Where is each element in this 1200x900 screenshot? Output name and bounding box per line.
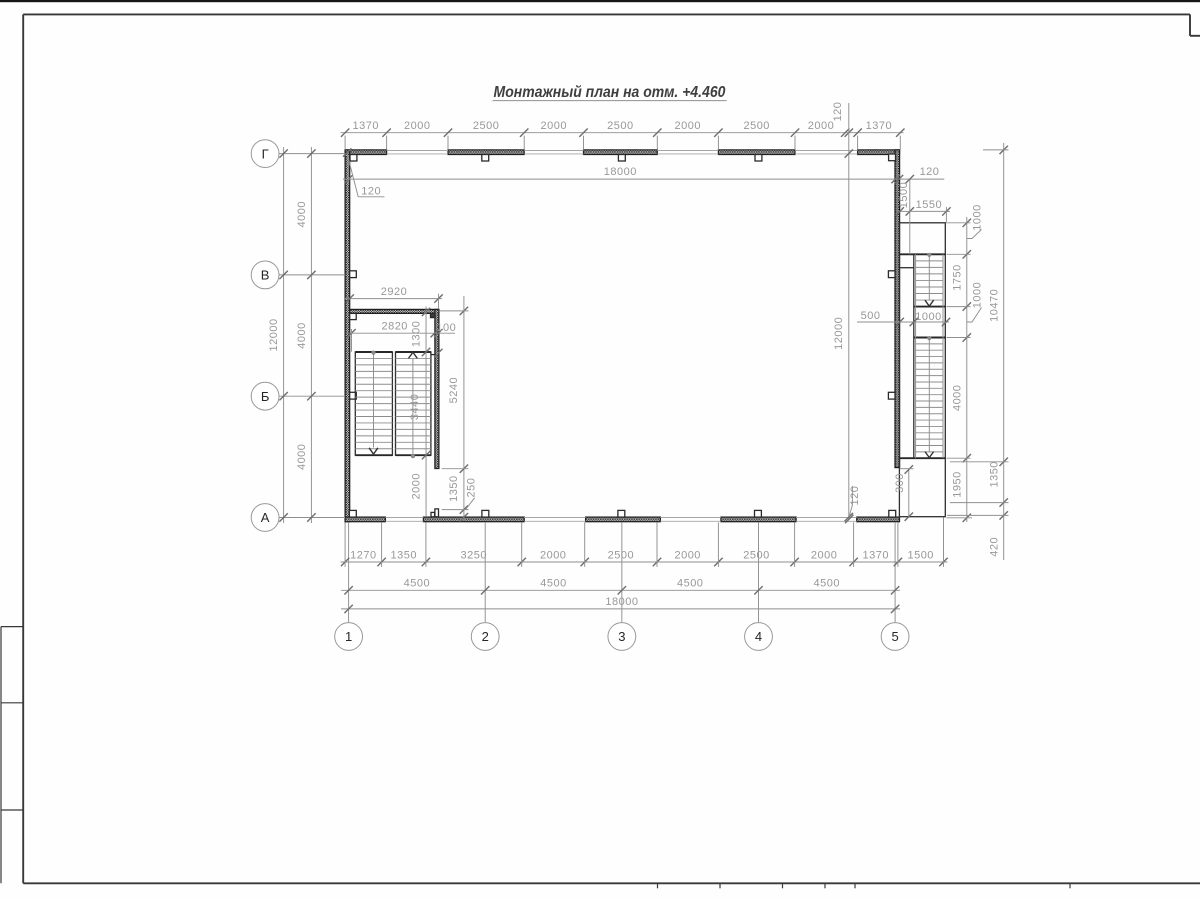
- svg-text:2500: 2500: [743, 549, 769, 561]
- svg-text:120: 120: [361, 186, 381, 198]
- svg-text:12000: 12000: [833, 317, 845, 350]
- svg-text:1300: 1300: [410, 321, 422, 347]
- svg-text:3: 3: [618, 629, 625, 644]
- svg-text:100: 100: [436, 322, 456, 334]
- svg-text:1950: 1950: [951, 471, 963, 497]
- svg-text:4500: 4500: [404, 577, 430, 589]
- svg-text:1000: 1000: [971, 204, 983, 230]
- svg-text:120: 120: [849, 486, 861, 506]
- svg-text:2000: 2000: [808, 120, 834, 132]
- svg-text:1000: 1000: [915, 311, 941, 323]
- svg-text:4000: 4000: [951, 385, 963, 411]
- svg-text:2: 2: [482, 629, 489, 644]
- svg-text:4000: 4000: [296, 201, 308, 227]
- svg-text:10470: 10470: [988, 289, 1000, 322]
- svg-text:120: 120: [920, 166, 940, 178]
- svg-text:2500: 2500: [473, 120, 499, 132]
- svg-text:2000: 2000: [410, 473, 422, 499]
- svg-text:1500: 1500: [907, 549, 933, 561]
- svg-text:1000: 1000: [971, 282, 983, 308]
- svg-text:2000: 2000: [675, 120, 701, 132]
- svg-text:1370: 1370: [863, 549, 889, 561]
- svg-text:1370: 1370: [353, 120, 379, 132]
- svg-text:500: 500: [861, 310, 881, 322]
- svg-text:1350: 1350: [988, 461, 1000, 487]
- svg-text:4500: 4500: [814, 577, 840, 589]
- svg-text:5: 5: [891, 629, 898, 644]
- svg-text:1: 1: [345, 629, 352, 644]
- svg-text:2000: 2000: [540, 549, 566, 561]
- svg-text:Монтажный план на отм. +4.460: Монтажный план на отм. +4.460: [494, 84, 727, 101]
- svg-text:2000: 2000: [811, 549, 837, 561]
- svg-text:2500: 2500: [608, 549, 634, 561]
- svg-text:300: 300: [894, 473, 906, 493]
- svg-text:420: 420: [988, 537, 1000, 557]
- svg-text:3440: 3440: [409, 394, 421, 420]
- svg-text:А: А: [261, 510, 270, 525]
- svg-text:2000: 2000: [674, 549, 700, 561]
- svg-text:Б: Б: [261, 389, 270, 404]
- svg-text:2000: 2000: [541, 120, 567, 132]
- svg-text:4: 4: [755, 629, 762, 644]
- svg-text:4500: 4500: [540, 577, 566, 589]
- svg-text:2500: 2500: [743, 120, 769, 132]
- svg-text:4000: 4000: [296, 444, 308, 470]
- svg-text:2000: 2000: [404, 120, 430, 132]
- svg-text:В: В: [261, 268, 270, 283]
- svg-text:3250: 3250: [461, 549, 487, 561]
- svg-text:4500: 4500: [677, 577, 703, 589]
- svg-text:2500: 2500: [607, 120, 633, 132]
- svg-text:1350: 1350: [448, 475, 460, 501]
- svg-text:2820: 2820: [381, 321, 407, 333]
- svg-text:1270: 1270: [350, 549, 376, 561]
- svg-text:18000: 18000: [605, 596, 638, 608]
- svg-text:5240: 5240: [448, 377, 460, 403]
- svg-text:4000: 4000: [296, 322, 308, 348]
- svg-text:1550: 1550: [916, 199, 942, 211]
- svg-text:120: 120: [832, 102, 844, 122]
- svg-text:1500: 1500: [898, 182, 910, 208]
- svg-text:1370: 1370: [866, 120, 892, 132]
- svg-text:1350: 1350: [391, 549, 417, 561]
- svg-text:250: 250: [466, 478, 478, 498]
- svg-text:Г: Г: [262, 146, 269, 161]
- svg-text:1750: 1750: [951, 264, 963, 290]
- svg-text:12000: 12000: [268, 318, 280, 351]
- svg-text:2920: 2920: [381, 286, 407, 298]
- svg-text:18000: 18000: [604, 166, 637, 178]
